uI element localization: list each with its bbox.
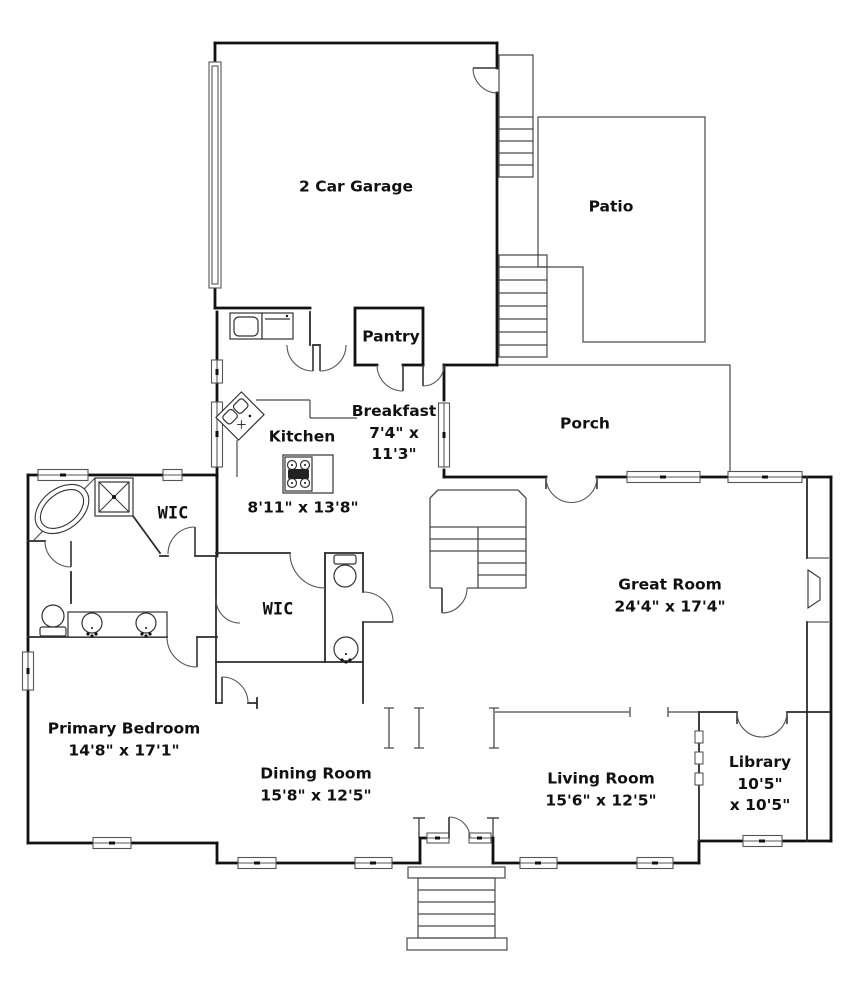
room-label-great-room: Great Room 24'4" x 17'4": [614, 575, 725, 618]
window-icon: [238, 858, 276, 869]
pedestal-sink-icon: [334, 637, 358, 664]
stair-closet-door-icon: [442, 588, 467, 613]
sidelight-window-icon: [469, 833, 491, 843]
room-label-breakfast: Breakfast 7'4" x 11'3": [352, 401, 437, 466]
garage-door-icon: [209, 62, 221, 288]
patio-upper-stairs: [499, 55, 533, 177]
room-label-patio: Patio: [589, 196, 634, 218]
washer-icon: [230, 313, 262, 339]
window-icon: [637, 858, 673, 869]
room-label-kitchen: Kitchen: [269, 426, 336, 448]
window-icon: [627, 472, 700, 483]
mudroom-door-icon: [320, 345, 346, 371]
room-label-wic-2: WIC: [263, 599, 294, 621]
main-stairs: [430, 490, 526, 588]
room-label-library: Library 10'5" x 10'5": [729, 752, 791, 817]
room-label-dining-room: Dining Room 15'8" x 12'5": [260, 764, 371, 807]
room-label-living-room: Living Room 15'6" x 12'5": [545, 769, 656, 812]
room-label-primary-bedroom: Primary Bedroom 14'8" x 17'1": [48, 719, 201, 762]
front-steps: [407, 867, 507, 950]
water-closet-door-icon: [45, 541, 71, 567]
room-label-pantry: Pantry: [362, 326, 420, 348]
bathtub-icon: [26, 474, 99, 543]
room-label-kitchen-dims: 8'11" x 13'8": [247, 497, 358, 519]
window-icon: [355, 858, 392, 869]
cooktop-island-icon: [283, 455, 333, 493]
pantry-door-icon: [377, 365, 403, 391]
room-label-porch: Porch: [560, 413, 610, 435]
floorplan-drawing: [0, 0, 860, 1004]
bedroom-door-icon: [222, 677, 248, 703]
cased-opening-stubs: [384, 707, 699, 748]
patio-outline: [538, 117, 705, 342]
double-vanity-icon: [68, 612, 167, 638]
floor-plan-page: 2 Car Garage Patio Pantry Breakfast 7'4"…: [0, 0, 860, 1004]
window-icon: [743, 836, 782, 847]
bookshelf-ticks: [695, 731, 703, 785]
bath-door-icon: [167, 637, 197, 667]
toilet-icon: [40, 605, 66, 636]
powder-toilet-icon: [334, 555, 356, 587]
shower-icon: [95, 478, 133, 516]
wic2-door-icon: [290, 553, 325, 588]
corner-sink-icon: [216, 392, 264, 440]
laundry-door-icon: [287, 345, 313, 371]
window-icon: [38, 470, 88, 481]
window-icon: [93, 838, 131, 849]
patio-lower-stairs: [499, 255, 547, 357]
french-doors-icon: [546, 477, 572, 503]
vestibule-door-icon: [423, 365, 444, 386]
powder-door-icon: [363, 592, 393, 622]
dryer-icon: [262, 313, 293, 339]
front-door-icon: [449, 817, 470, 838]
porch-outline: [497, 365, 730, 477]
room-label-garage: 2 Car Garage: [299, 176, 413, 198]
closet-door-icon: [216, 599, 240, 623]
window-icon: [163, 470, 182, 481]
wic1-door-icon: [168, 527, 195, 554]
library-french-door-icon: [762, 712, 787, 737]
window-icon: [728, 472, 802, 483]
library-french-door-icon: [737, 712, 762, 737]
window-icon: [212, 360, 223, 383]
sidelight-window-icon: [427, 833, 449, 843]
window-icon: [520, 858, 557, 869]
window-icon: [23, 652, 34, 690]
garage-entry-door-icon: [473, 68, 497, 93]
fireplace-icon: [807, 558, 829, 622]
window-icon: [439, 403, 450, 467]
french-doors-icon: [572, 477, 598, 503]
room-label-wic-1: WIC: [158, 503, 189, 525]
